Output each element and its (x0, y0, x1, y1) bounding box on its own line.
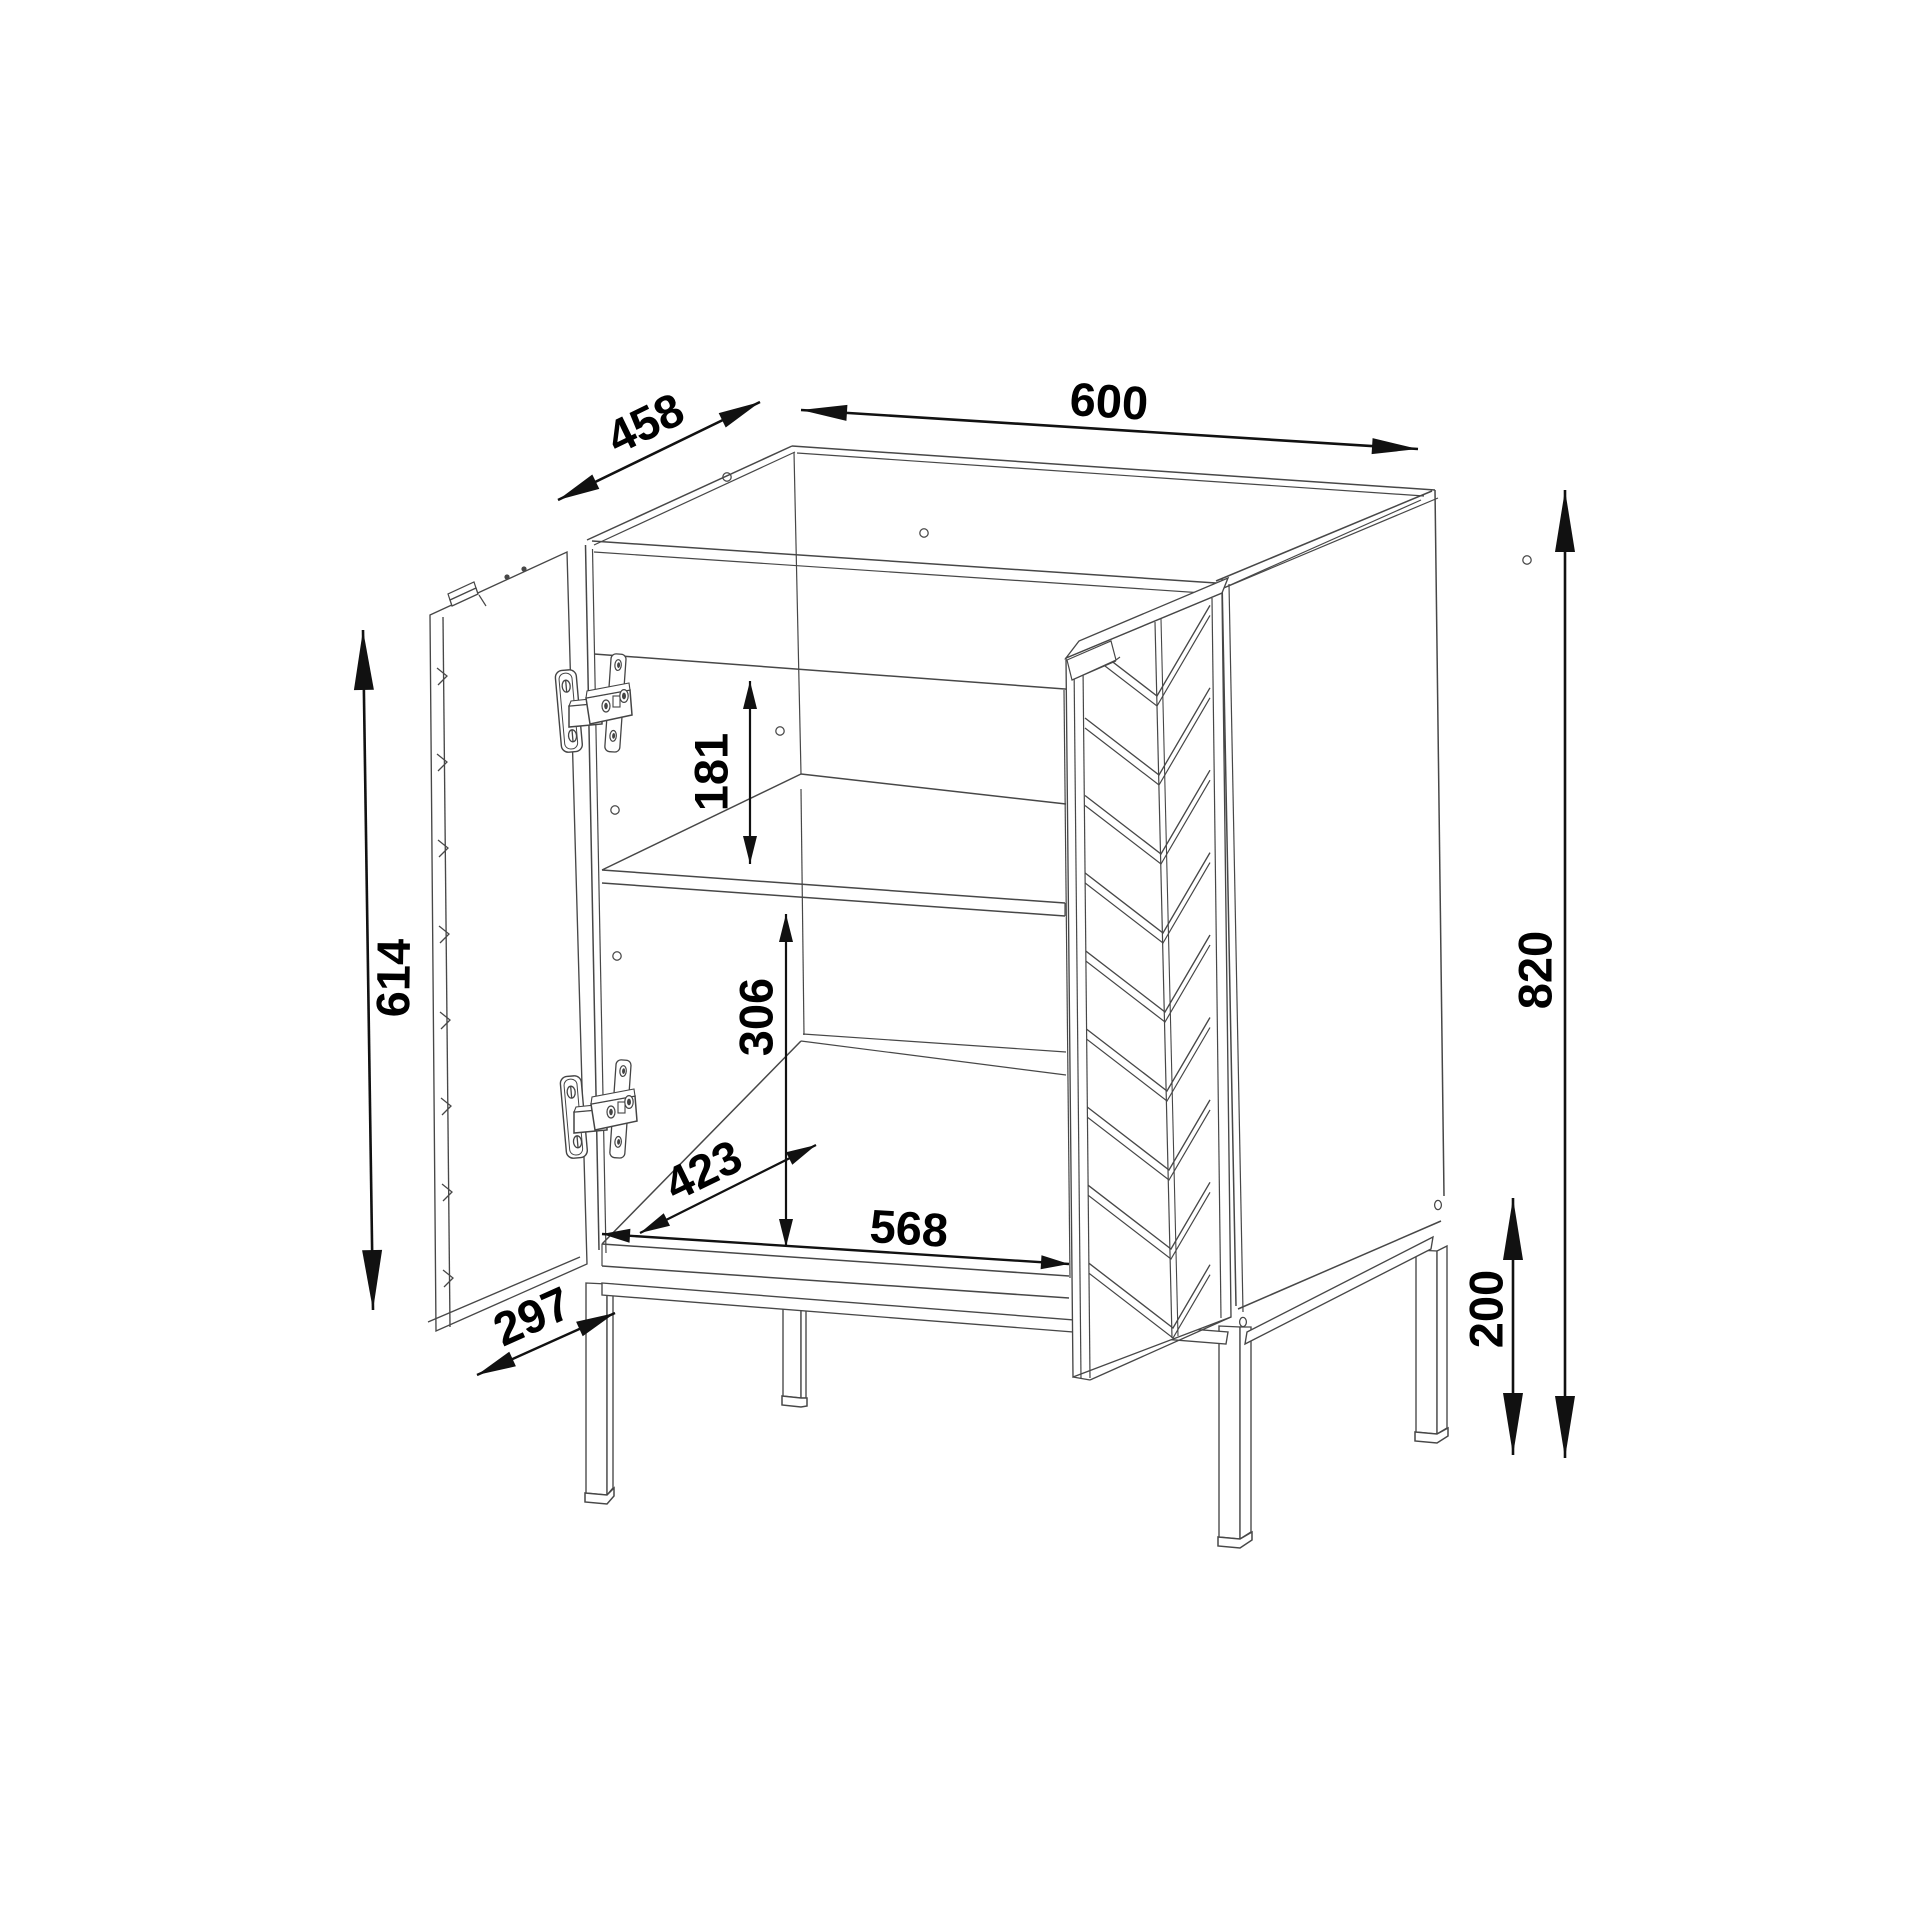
svg-text:200: 200 (1460, 1270, 1513, 1348)
svg-text:600: 600 (1068, 372, 1150, 430)
svg-text:306: 306 (730, 978, 783, 1056)
svg-text:820: 820 (1509, 931, 1562, 1009)
svg-text:181: 181 (685, 733, 738, 811)
svg-text:568: 568 (868, 1199, 950, 1257)
svg-text:614: 614 (366, 938, 420, 1017)
